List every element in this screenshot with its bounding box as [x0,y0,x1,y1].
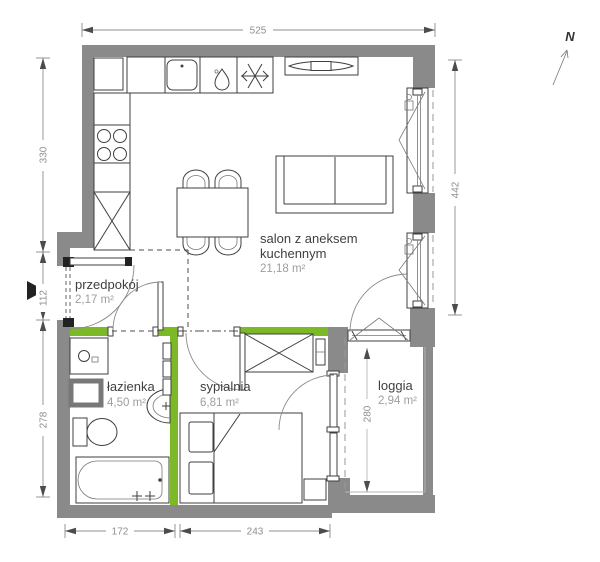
installation-shaft [71,381,101,405]
hall-cabinet [70,257,132,266]
dim-left-lower-label: 278 [39,411,50,428]
north-label: N [565,29,575,44]
chair-inner [219,237,237,250]
door-swing-arc [350,274,408,332]
dim-top-label: 525 [250,26,267,37]
lazienka-label: łazienka [107,379,155,394]
sypialnia-area: 6,81 m² [200,397,239,409]
loggia-label: loggia [378,378,413,393]
chair-inner [187,176,205,188]
salon-label-line2: kuchennym [260,246,326,261]
tub-drain [158,478,162,482]
loggia-outline [345,338,425,494]
floor-plan: salon z aneksem kuchennym 21,18 m² przed… [0,0,600,562]
sink-tap-dot [181,65,184,68]
washing-machine-icon [70,338,108,374]
dimension-top: 525 [82,23,435,37]
sypialnia-label: sypialnia [200,379,251,394]
window-leaf [330,433,337,477]
wall-bedroom-loggia-block [328,478,350,513]
bed [180,413,302,503]
dimension-left-chain: 330 112 278 [36,58,50,497]
wall-loggia-right [423,347,433,495]
dimension-bottom: 172 243 [65,524,330,538]
wall-left-step [57,232,94,248]
chair-inner [187,237,205,250]
salon-label-line1: salon z aneksem [260,231,358,246]
dining-table [177,188,248,237]
wall-left-lower [57,320,70,518]
bathtub [76,457,169,503]
bathroom-radiator [163,343,171,395]
dim-bottom-right-label: 243 [247,527,264,538]
dim-right-label: 442 [451,181,462,198]
door-post [63,318,74,327]
door-leaf [158,282,163,330]
sofa [276,156,393,213]
kitchen-corner-cabinet [94,58,123,90]
window-2 [399,233,433,308]
chair-inner [219,176,237,188]
dim-left-upper-label: 330 [39,146,50,163]
wall-right-top-block [413,45,435,88]
north-arrow-icon: N [553,29,575,85]
salon-area: 21,18 m² [260,263,306,275]
przedpokoj-area: 2,17 m² [75,294,114,306]
wall-left-upper [82,45,94,235]
floor-plan-page: salon z aneksem kuchennym 21,18 m² przed… [0,0,600,562]
toilet [73,418,117,446]
dimension-right: 442 [448,60,462,315]
wall-bottom [57,505,332,518]
bedroom-radiator [316,339,325,365]
window-leaf [330,374,337,428]
dim-left-middle-label: 112 [39,290,50,306]
dimension-loggia: 280 [360,348,374,492]
dim-bottom-left-label: 172 [112,527,129,538]
window-1 [399,88,433,193]
kitchen-counter-left [94,93,130,250]
wardrobe-icon [245,334,313,372]
lazienka-area: 4,50 m² [107,397,146,409]
tv-cabinet [285,57,358,75]
kitchen-sink-icon [167,60,197,90]
balcony-door [348,274,410,341]
wall-right-corner-block [410,308,435,347]
bedroom [180,333,339,503]
dim-loggia-label: 280 [363,405,374,422]
dining-set [177,170,248,255]
wall-window-pier [413,193,435,233]
wall-top [82,45,435,57]
tv-base [311,62,331,71]
przedpokoj-label: przedpokój [75,277,139,292]
loggia-area: 2,94 m² [378,395,417,407]
nightstand [304,479,326,500]
